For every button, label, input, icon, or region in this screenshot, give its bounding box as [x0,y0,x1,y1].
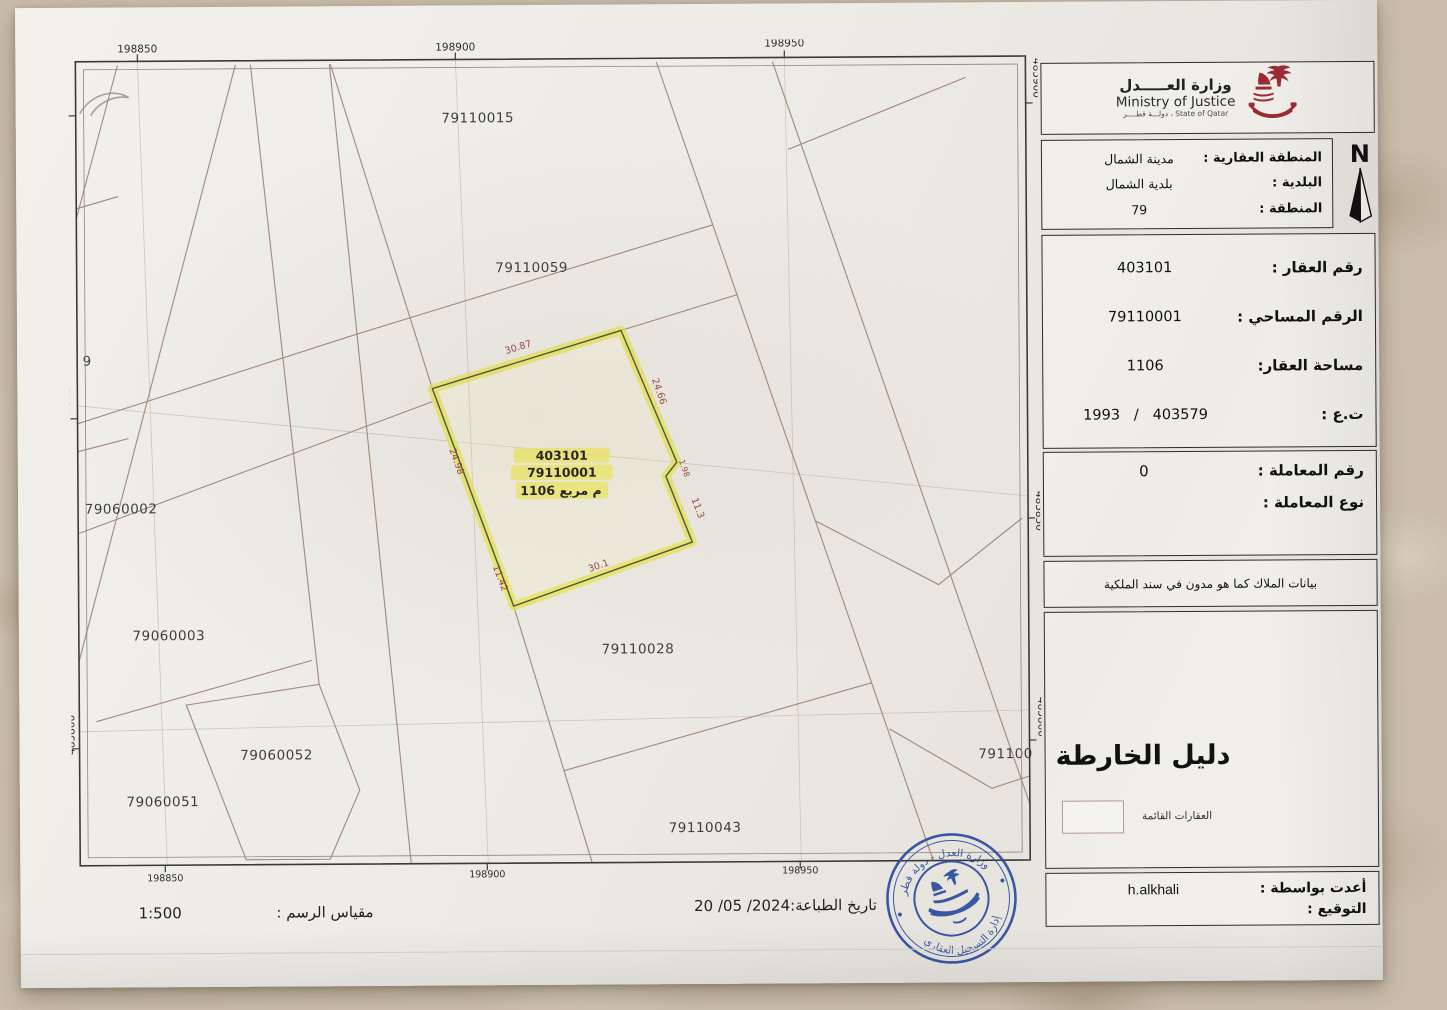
deed-label: ت.ع : [1235,404,1363,423]
transaction-number-value: 0 [1056,462,1232,481]
parcel-79060002: 79060002 [85,501,158,517]
coord-left-1: 485900 [67,72,68,112]
coord-top-2: 198900 [435,41,475,53]
deed-row: ت.ع : 403579 / 1993 [1055,404,1363,424]
owners-note-box: بيانات الملاك كما هو مدون في سند الملكية [1043,559,1377,608]
legend-existing-properties-label: العقارات القائمة [1142,810,1212,822]
north-arrow-icon [1347,166,1373,224]
highlight-survey-number: 79110001 [527,465,597,480]
zone-region-label: المنطقة العقارية : [1226,150,1322,166]
property-area-value: 1106 [1055,357,1235,374]
ministry-emblem-icon [1245,64,1299,130]
svg-text:30.87: 30.87 [504,338,533,357]
parcel-79110059: 79110059 [495,260,568,276]
parcel-79060003: 79060003 [132,628,205,644]
signature-row: التوقيع : [1059,900,1367,918]
highlighted-parcel: 403101 79110001 1106 م مربع [432,330,693,607]
coord-right-2: 485850 [1033,491,1042,531]
svg-text:11.3: 11.3 [689,496,707,520]
ministry-tagline: State of Qatar ، دولـــة قطــــر [1116,110,1236,119]
zone-row-region: المنطقة العقارية : مدينة الشمال [1052,150,1322,167]
prepared-by-label: أعدت بواسطة : [1248,879,1366,896]
municipality-value: بلدية الشمال [1052,176,1226,192]
transaction-type-label: نوع المعاملة : [1232,493,1364,512]
document-paper: 403101 79110001 1106 م مربع 30.87 24.66 … [15,0,1383,988]
district-value: 79 [1052,202,1226,218]
transaction-number-label: رقم المعاملة : [1232,461,1364,480]
svg-text:1.98: 1.98 [677,458,691,478]
property-number-value: 403101 [1055,259,1235,276]
property-number-label: رقم العقار : [1235,257,1363,276]
zone-row-district: المنطقة : 79 [1052,201,1322,218]
zone-row-municipality: البلدية : بلدية الشمال [1052,176,1322,193]
prepared-by-box: أعدت بواسطة : h.alkhali التوقيع : [1045,871,1379,927]
parcel-79110015: 79110015 [441,110,514,126]
deed-value: 403579 / 1993 [1055,406,1235,423]
parcel-79110028: 79110028 [602,641,675,657]
stamp-text-top: وزارة العدل - دولة قطر [887,834,994,901]
cadastral-map: 403101 79110001 1106 م مربع 30.87 24.66 … [67,38,1042,889]
coord-top-3: 198950 [764,38,804,50]
highlight-area: 1106 م مربع [520,483,602,499]
parcel-79060052: 79060052 [240,747,313,763]
municipality-label: البلدية : [1226,176,1322,192]
owners-note-text: بيانات الملاك كما هو مدون في سند الملكية [1104,576,1317,591]
district-label: المنطقة : [1226,201,1322,217]
transaction-type-row: نوع المعاملة : [1056,493,1364,513]
survey-number-label: الرقم المساحي : [1235,306,1363,325]
coord-bottom-3: 198950 [782,865,818,876]
legend-swatch [1062,800,1124,833]
zone-info-box: المنطقة العقارية : مدينة الشمال البلدية … [1041,138,1334,230]
north-letter: N [1338,142,1382,166]
coord-right-3: 485800 [1035,697,1042,737]
coord-left-3: 485800 [67,715,77,755]
signature-label: التوقيع : [1248,900,1366,917]
scale-line: مقياس الرسم : 1:500 [138,903,373,922]
scale-label: مقياس الرسم : [276,903,373,922]
transaction-type-value [1056,503,1232,504]
ministry-titles: وزارة العـــــدل Ministry of Justice Sta… [1116,77,1236,119]
scale-value: 1:500 [138,904,181,922]
coord-left-2: 485850 [67,387,72,427]
pen-mark [80,93,129,116]
prepared-by-value: h.alkhali [1058,880,1248,897]
print-date-value: 20 /05 /2024 [694,896,790,915]
parcel-79060051: 79060051 [126,794,199,810]
parcel-791100: 791100 [978,746,1033,762]
parcel-9: 9 [83,354,92,370]
property-info-box: رقم العقار : 403101 الرقم المساحي : 7911… [1041,233,1376,449]
survey-number-value: 79110001 [1055,308,1235,325]
property-area-row: مساحة العقار: 1106 [1055,355,1363,375]
print-date-line: 20 /05 /2024تاريخ الطباعة: [660,896,910,916]
north-indicator: N [1338,142,1383,228]
transaction-number-row: رقم المعاملة : 0 [1056,461,1364,481]
legend-title: دليل الخارطة [1056,740,1231,772]
coord-bottom-1: 198850 [147,873,183,884]
coord-bottom-2: 198900 [469,869,505,880]
print-date-label: تاريخ الطباعة: [790,896,877,915]
transaction-box: رقم المعاملة : 0 نوع المعاملة : [1043,450,1378,557]
signature-value [1059,909,1249,910]
zone-region-value: مدينة الشمال [1052,151,1226,167]
registration-stamp: وزارة العدل - دولة قطر إدارة التسجيل الع… [878,825,1025,972]
prepared-by-row: أعدت بواسطة : h.alkhali [1058,879,1366,897]
highlight-plot-number: 403101 [536,448,588,463]
property-area-label: مساحة العقار: [1235,355,1363,374]
ministry-header-box: وزارة العـــــدل Ministry of Justice Sta… [1040,61,1374,135]
parcel-79110043: 79110043 [669,820,742,836]
property-number-row: رقم العقار : 403101 [1055,257,1363,277]
map-legend-box: دليل الخارطة العقارات القائمة [1044,610,1380,869]
survey-number-row: الرقم المساحي : 79110001 [1055,306,1363,326]
paper-crease [21,946,1383,955]
coord-top-1: 198850 [117,43,157,55]
ministry-name-arabic: وزارة العـــــدل [1116,77,1236,95]
